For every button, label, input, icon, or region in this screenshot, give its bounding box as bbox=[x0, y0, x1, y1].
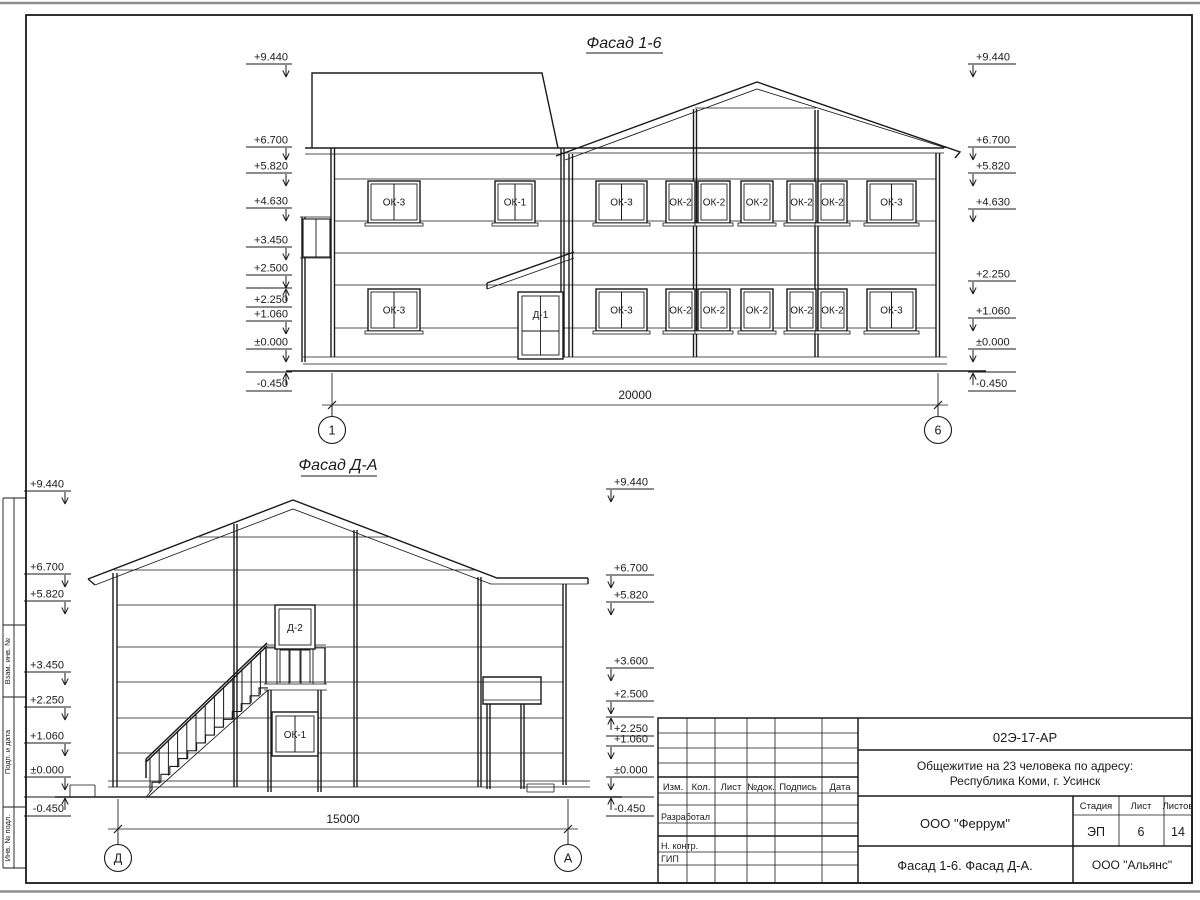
window-label: ОК-2 bbox=[821, 198, 844, 209]
window-label: ОК-2 bbox=[669, 198, 692, 209]
elevation-value: -0.450 bbox=[257, 378, 288, 390]
elevation-arrow-down-icon bbox=[970, 65, 976, 77]
elevation-value: +2.500 bbox=[614, 689, 648, 701]
elevation-arrow-down-icon bbox=[283, 322, 289, 334]
window: ОК-2 bbox=[815, 289, 850, 334]
side-stamp: Взам. инв. № Подп. и дата Инв. № подл. bbox=[3, 498, 26, 868]
elevation-mark: +1.060 bbox=[606, 734, 654, 760]
elevation-arrow-down-icon bbox=[283, 174, 289, 186]
elevation-mark: +9.440 bbox=[968, 52, 1016, 78]
elevation-mark: -0.450 bbox=[968, 372, 1016, 391]
elevation-value: +6.700 bbox=[254, 135, 288, 147]
elevation-mark: +1.060 bbox=[24, 731, 71, 757]
elevation-arrow-down-icon bbox=[62, 602, 68, 614]
designer-org: ООО "Феррум" bbox=[920, 816, 1010, 831]
window-sill bbox=[784, 331, 819, 334]
facade-d-a-outline bbox=[88, 500, 588, 792]
window-label: ОК-2 bbox=[790, 198, 813, 209]
window-label: ОК-1 bbox=[504, 198, 527, 209]
axis-label: 6 bbox=[935, 424, 942, 438]
elevation-mark: +3.450 bbox=[246, 235, 292, 261]
sheets-total: 14 bbox=[1171, 825, 1185, 839]
elevation-mark: ±0.000 bbox=[246, 337, 292, 363]
axis-label: 1 bbox=[329, 424, 336, 438]
window: ОК-3 bbox=[593, 289, 650, 334]
side-stamp-label: Подп. и дата bbox=[3, 729, 12, 774]
elevation-mark: +6.700 bbox=[968, 135, 1016, 161]
col-podpis: Подпись bbox=[779, 782, 817, 793]
elevation-mark: +5.820 bbox=[968, 161, 1016, 187]
window: ОК-1 bbox=[492, 181, 538, 226]
side-stamp-label: Взам. инв. № bbox=[3, 638, 12, 684]
axis-bubble: Д bbox=[105, 833, 132, 872]
elevation-value: +5.820 bbox=[30, 589, 64, 601]
elevation-mark: +6.700 bbox=[246, 135, 292, 161]
facade-1-6-thin-lines bbox=[300, 89, 948, 416]
elevation-mark: +4.630 bbox=[246, 196, 292, 222]
col-data: Дата bbox=[829, 782, 851, 793]
window: ОК-2 bbox=[815, 181, 850, 226]
elevation-arrow-down-icon bbox=[970, 282, 976, 294]
elevation-value: +1.060 bbox=[254, 309, 288, 321]
elevation-arrow-down-icon bbox=[970, 350, 976, 362]
elevation-mark: -0.450 bbox=[606, 797, 654, 816]
elevation-value: +5.820 bbox=[976, 161, 1010, 173]
elevation-arrow-down-icon bbox=[608, 603, 614, 615]
window-sill bbox=[695, 223, 733, 226]
elevation-value: +2.250 bbox=[30, 695, 64, 707]
sheets-label: Листов bbox=[1163, 801, 1194, 812]
stage-label: Стадия bbox=[1080, 801, 1112, 812]
elevation-value: ±0.000 bbox=[976, 337, 1010, 349]
sheet-number: 6 bbox=[1138, 825, 1145, 839]
elevation-value: +6.700 bbox=[614, 563, 648, 575]
title-block: 02Э-17-АР Общежитие на 23 человека по ад… bbox=[658, 718, 1193, 883]
elevation-arrow-down-icon bbox=[283, 350, 289, 362]
elevation-mark: +5.820 bbox=[246, 161, 292, 187]
stair-handrail bbox=[146, 643, 267, 778]
window-sill bbox=[864, 331, 919, 334]
elevation-arrow-down-icon bbox=[62, 492, 68, 504]
window-sill bbox=[593, 331, 650, 334]
elevation-arrow-down-icon bbox=[62, 778, 68, 790]
window: ОК-2 bbox=[663, 181, 698, 226]
facade-d-a-title: Фасад Д-А bbox=[298, 457, 377, 474]
elevation-arrow-down-icon bbox=[283, 209, 289, 221]
window-label: ОК-3 bbox=[383, 306, 406, 317]
elevation-mark: +2.500 bbox=[246, 263, 292, 289]
window-label: ОК-2 bbox=[703, 198, 726, 209]
window-sill bbox=[864, 223, 919, 226]
elevation-value: +4.630 bbox=[254, 196, 288, 208]
elevation-arrow-down-icon bbox=[62, 744, 68, 756]
elevation-arrow-down-icon bbox=[608, 490, 614, 502]
elevation-value: +4.630 bbox=[976, 197, 1010, 209]
elevation-arrow-down-icon bbox=[970, 319, 976, 331]
elevation-value: +5.820 bbox=[614, 590, 648, 602]
elevation-arrow-down-icon bbox=[283, 248, 289, 260]
elevation-mark: ±0.000 bbox=[968, 337, 1016, 363]
window-sill bbox=[593, 223, 650, 226]
elevation-mark: +1.060 bbox=[968, 306, 1016, 332]
elevation-arrow-down-icon bbox=[608, 778, 614, 790]
facade-d-a-openings: Д-2ОК-1 bbox=[272, 605, 318, 756]
elevation-value: -0.450 bbox=[33, 803, 64, 815]
elevation-value: -0.450 bbox=[976, 378, 1007, 390]
elevation-mark: +5.820 bbox=[24, 589, 71, 615]
window-label: ОК-3 bbox=[610, 198, 633, 209]
sheet-label: Лист bbox=[1131, 801, 1152, 812]
elevation-value: +1.060 bbox=[614, 734, 648, 746]
elevation-value: +2.250 bbox=[976, 269, 1010, 281]
window: ОК-2 bbox=[663, 289, 698, 334]
elevation-arrow-down-icon bbox=[970, 174, 976, 186]
elevation-arrow-down-icon bbox=[608, 576, 614, 588]
elevation-value: -0.450 bbox=[614, 803, 645, 815]
elevation-mark: +2.250 bbox=[968, 269, 1016, 295]
stair-balusters bbox=[150, 651, 260, 792]
col-ndok: №док. bbox=[747, 782, 775, 793]
facade-1-6-dimension: 20000 bbox=[328, 388, 942, 409]
dimension-value: 15000 bbox=[326, 812, 360, 826]
window-sill bbox=[695, 331, 733, 334]
col-kol: Кол. bbox=[692, 782, 711, 793]
facade-d-a-dimension: 15000 bbox=[114, 812, 572, 833]
elevation-arrow-down-icon bbox=[283, 148, 289, 160]
axis-label: Д bbox=[114, 852, 123, 866]
window-label: ОК-3 bbox=[880, 198, 903, 209]
window: ОК-2 bbox=[695, 181, 733, 226]
window-sill bbox=[738, 331, 776, 334]
elevation-value: +6.700 bbox=[976, 135, 1010, 147]
window-label: ОК-3 bbox=[880, 306, 903, 317]
elevation-value: +3.600 bbox=[614, 656, 648, 668]
elevation-value: +1.060 bbox=[976, 306, 1010, 318]
landing-rail-glazing bbox=[277, 649, 313, 684]
window-sill bbox=[738, 223, 776, 226]
side-stamp-label: Инв. № подл. bbox=[3, 815, 12, 862]
facade-1-6-title: Фасад 1-6 bbox=[587, 35, 662, 52]
elevation-mark: +4.630 bbox=[968, 197, 1016, 223]
window-label: ОК-2 bbox=[746, 198, 769, 209]
stage-value: ЭП bbox=[1087, 825, 1105, 839]
elevation-mark: +9.440 bbox=[606, 477, 654, 503]
elevation-arrow-down-icon bbox=[62, 708, 68, 720]
blueprint-sheet: Взам. инв. № Подп. и дата Инв. № подл. Ф… bbox=[0, 0, 1200, 900]
axis-bubble: 6 bbox=[925, 405, 952, 444]
elevation-arrow-down-icon bbox=[283, 65, 289, 77]
window: ОК-3 bbox=[864, 289, 919, 334]
elevation-mark: +3.450 bbox=[24, 660, 71, 686]
window-label: ОК-2 bbox=[746, 306, 769, 317]
elevation-arrow-down-icon bbox=[62, 673, 68, 685]
elevation-value: +5.820 bbox=[254, 161, 288, 173]
elevation-mark: +1.060 bbox=[246, 309, 292, 335]
elevation-value: +3.450 bbox=[254, 235, 288, 247]
elevation-value: +2.500 bbox=[254, 263, 288, 275]
porch-window bbox=[303, 219, 330, 257]
elevation-value: +9.440 bbox=[614, 477, 648, 489]
entrance-door: Д-1 bbox=[518, 292, 563, 359]
window-sill bbox=[815, 223, 850, 226]
window: ОК-2 bbox=[738, 181, 776, 226]
project-title-line1: Общежитие на 23 человека по адресу: bbox=[917, 759, 1133, 773]
elevation-mark: ±0.000 bbox=[606, 765, 654, 791]
window-sill bbox=[492, 223, 538, 226]
elevation-value: +6.700 bbox=[30, 562, 64, 574]
elevation-arrow-down-icon bbox=[62, 575, 68, 587]
elevation-value: +9.440 bbox=[30, 479, 64, 491]
window: ОК-3 bbox=[864, 181, 919, 226]
elevation-arrow-down-icon bbox=[283, 276, 289, 288]
role-razrabotal: Разработал bbox=[661, 812, 710, 822]
role-nkontr: Н. контр. bbox=[661, 841, 698, 851]
elevation-mark: -0.450 bbox=[24, 797, 71, 816]
window-label: ОК-1 bbox=[284, 730, 307, 741]
window-sill bbox=[784, 223, 819, 226]
elevation-arrow-down-icon bbox=[970, 210, 976, 222]
facade-1-6-view: Фасад 1-6 20000 ОК-3ОК-1ОК-3ОК-2ОК-2ОК-2… bbox=[246, 35, 1016, 444]
elevation-value: +3.450 bbox=[30, 660, 64, 672]
project-title-line2: Республика Коми, г. Усинск bbox=[950, 774, 1101, 788]
window: ОК-2 bbox=[784, 181, 819, 226]
elevation-arrow-down-icon bbox=[608, 669, 614, 681]
window: ОК-2 bbox=[738, 289, 776, 334]
contractor-org: ООО "Альянс" bbox=[1092, 858, 1172, 872]
axis-bubble: 1 bbox=[319, 405, 346, 444]
elevation-mark: +3.600 bbox=[606, 656, 654, 682]
elevation-mark: +2.250 bbox=[24, 695, 71, 721]
drawing-code: 02Э-17-АР bbox=[993, 730, 1057, 745]
door-label: Д-2 bbox=[287, 623, 303, 634]
col-izm: Изм. bbox=[663, 782, 683, 793]
elevation-mark: +9.440 bbox=[246, 52, 292, 78]
col-list: Лист bbox=[721, 782, 742, 793]
elevation-arrow-down-icon bbox=[970, 148, 976, 160]
window-label: ОК-3 bbox=[610, 306, 633, 317]
window: ОК-2 bbox=[695, 289, 733, 334]
elevation-arrow-down-icon bbox=[608, 747, 614, 759]
elevation-mark: +2.500 bbox=[606, 689, 654, 715]
elevation-value: +2.250 bbox=[254, 294, 288, 306]
window-label: ОК-3 bbox=[383, 198, 406, 209]
elevation-mark: +6.700 bbox=[606, 563, 654, 589]
elevation-value: ±0.000 bbox=[254, 337, 288, 349]
elevation-value: ±0.000 bbox=[30, 765, 64, 777]
window: ОК-3 bbox=[593, 181, 650, 226]
window-label: ОК-2 bbox=[703, 306, 726, 317]
door-label: Д-1 bbox=[533, 310, 549, 321]
elevation-mark: +5.820 bbox=[606, 590, 654, 616]
window-sill bbox=[815, 331, 850, 334]
elevation-value: ±0.000 bbox=[614, 765, 648, 777]
elevation-value: +1.060 bbox=[30, 731, 64, 743]
window-label: ОК-2 bbox=[669, 306, 692, 317]
drawing-canvas: Взам. инв. № Подп. и дата Инв. № подл. Ф… bbox=[0, 0, 1200, 900]
elevation-value: +9.440 bbox=[976, 52, 1010, 64]
elevation-mark: -0.450 bbox=[246, 372, 292, 391]
role-gip: ГИП bbox=[661, 854, 679, 864]
window-sill bbox=[365, 223, 423, 226]
window-label: ОК-2 bbox=[790, 306, 813, 317]
window: ОК-2 bbox=[784, 289, 819, 334]
elevation-mark: +6.700 bbox=[24, 562, 71, 588]
window-sill bbox=[365, 331, 423, 334]
elevation-arrow-down-icon bbox=[608, 702, 614, 714]
axis-bubble: А bbox=[555, 833, 582, 872]
elevation-mark: +9.440 bbox=[24, 479, 71, 505]
window-label: ОК-2 bbox=[821, 306, 844, 317]
elevation-value: +9.440 bbox=[254, 52, 288, 64]
window-sill bbox=[663, 331, 698, 334]
axis-label: А bbox=[564, 852, 573, 866]
dimension-value: 20000 bbox=[618, 388, 652, 402]
sheet-title: Фасад 1-6. Фасад Д-А. bbox=[897, 858, 1033, 873]
elevation-mark: +2.250 bbox=[246, 288, 292, 307]
facade-d-a-view: Фасад Д-А 15000 Д-2ОК-1 +9.440+6.700+5.8… bbox=[24, 457, 654, 872]
window-sill bbox=[663, 223, 698, 226]
window: ОК-3 bbox=[365, 289, 423, 334]
elevation-mark: ±0.000 bbox=[24, 765, 71, 791]
window: ОК-3 bbox=[365, 181, 423, 226]
